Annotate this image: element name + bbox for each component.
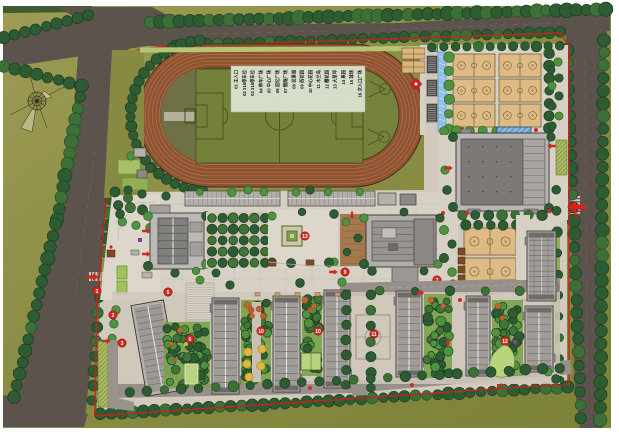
svg-text:9: 9	[344, 270, 347, 276]
svg-text:08 议事湖: 08 议事湖	[290, 69, 297, 89]
svg-text:13: 13	[302, 234, 308, 240]
svg-text:11: 11	[371, 332, 377, 338]
svg-text:06 追忆广场: 06 追忆广场	[274, 69, 281, 93]
svg-text:11 木兰岛: 11 木兰岛	[315, 69, 322, 88]
svg-text:10: 10	[315, 329, 321, 335]
svg-text:03 318停车位: 03 318停车位	[249, 69, 256, 96]
svg-text:10 中心花园: 10 中心花园	[307, 69, 314, 93]
svg-text:10: 10	[258, 329, 264, 335]
svg-text:5: 5	[167, 290, 170, 296]
svg-text:12 樱花园: 12 樱花园	[323, 69, 330, 89]
svg-text:16: 16	[574, 212, 580, 219]
svg-text:09 西花园: 09 西花园	[299, 69, 306, 89]
svg-text:05 中心广场: 05 中心广场	[266, 69, 273, 93]
svg-text:16 次入口广场: 16 次入口广场	[356, 69, 363, 97]
svg-text:13 大草坪: 13 大草坪	[332, 69, 339, 89]
svg-text:04 停车广场: 04 停车广场	[257, 69, 264, 93]
svg-text:15 球场: 15 球场	[348, 69, 355, 84]
svg-text:1: 1	[96, 289, 99, 295]
svg-text:14 果园: 14 果园	[340, 69, 347, 84]
svg-text:3: 3	[121, 341, 124, 347]
svg-text:2: 2	[112, 313, 115, 319]
svg-text:02 318停车位: 02 318停车位	[241, 69, 248, 96]
svg-text:01 主入口: 01 主入口	[233, 70, 240, 89]
svg-text:07 慢跑广场: 07 慢跑广场	[282, 69, 289, 93]
svg-text:12: 12	[502, 339, 508, 345]
svg-text:6: 6	[189, 337, 192, 343]
